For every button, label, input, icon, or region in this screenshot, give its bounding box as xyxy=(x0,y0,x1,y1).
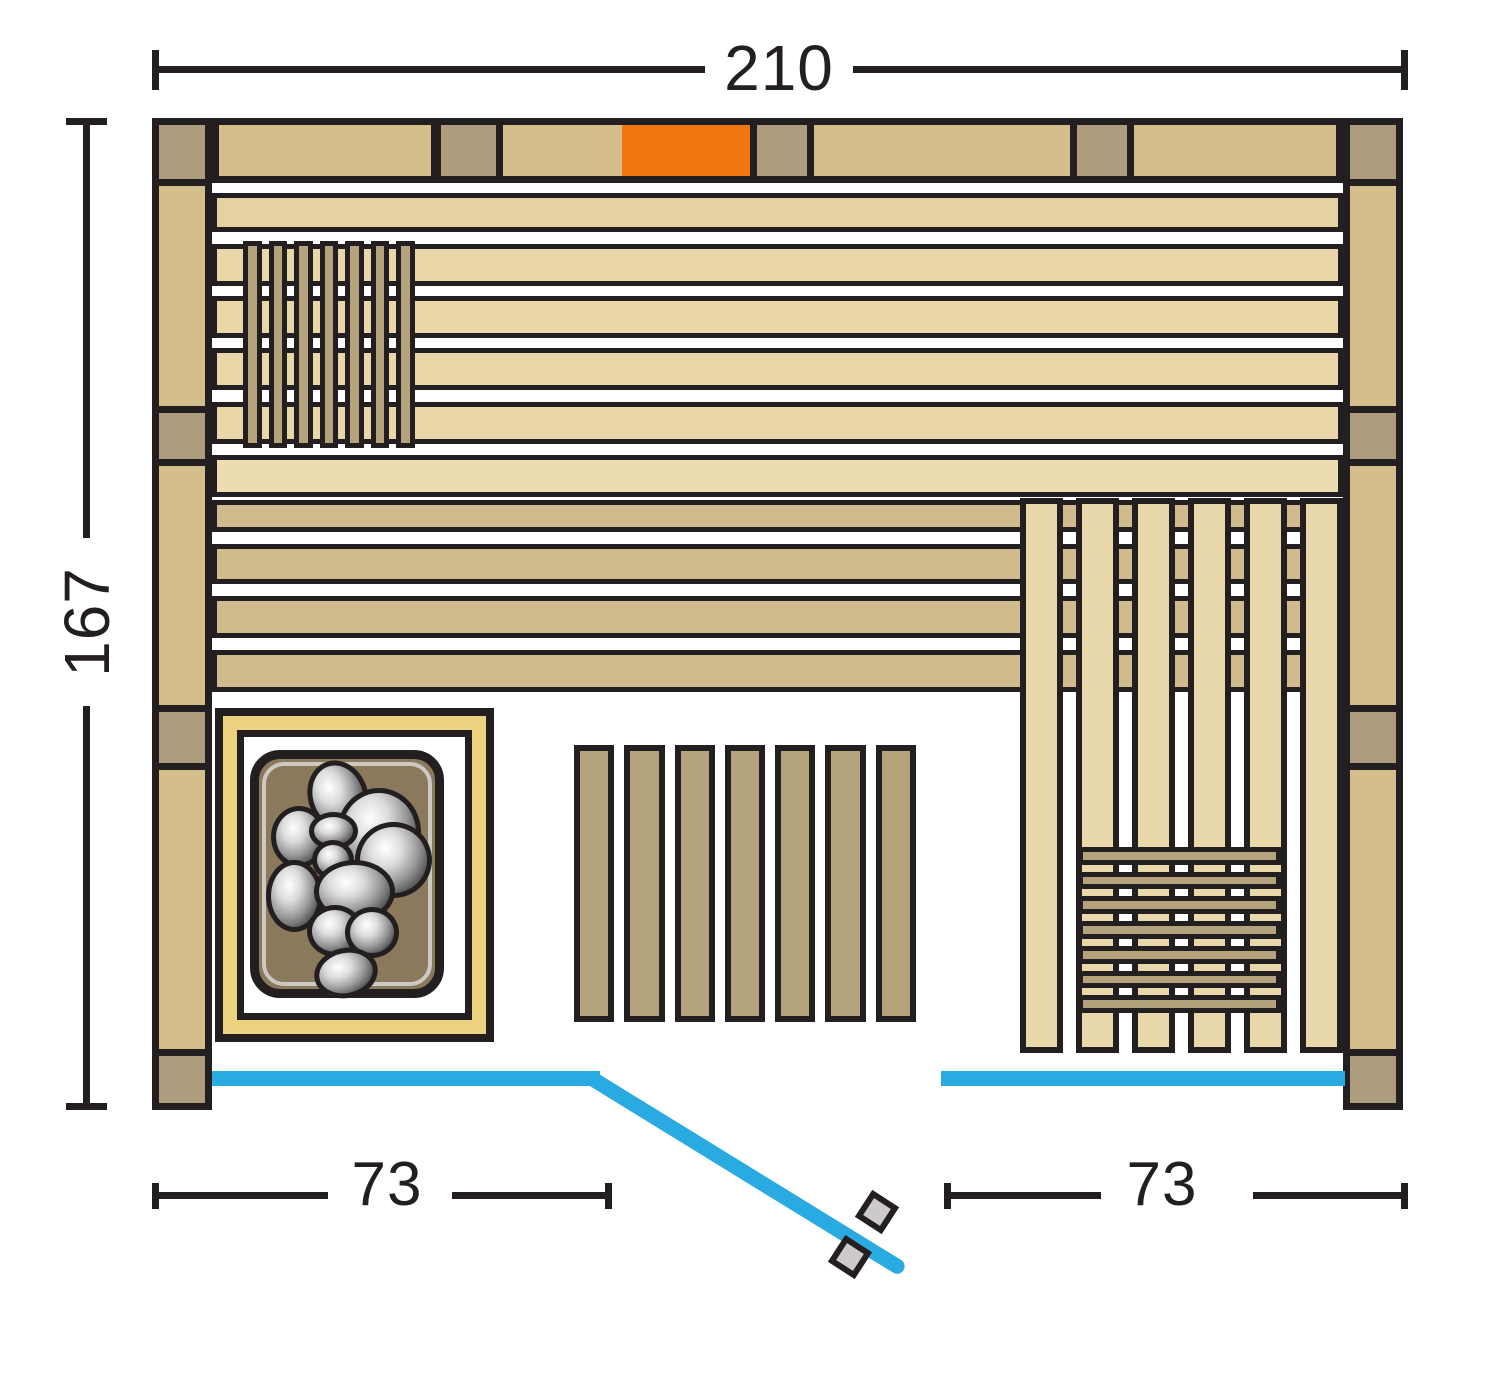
dim-front-left-label: 73 xyxy=(327,1154,447,1216)
dim-left-line-bottom xyxy=(83,706,90,1110)
dim-br-tick-left xyxy=(944,1183,951,1209)
glass-front-left xyxy=(212,1071,600,1086)
corner-post xyxy=(1350,1056,1396,1103)
dim-height-label: 167 xyxy=(55,567,119,677)
wall-board xyxy=(1350,466,1396,705)
wall-board xyxy=(159,770,205,1049)
bench-grate-bar xyxy=(1078,946,1281,964)
wall-post xyxy=(1350,413,1396,459)
headrest-slat xyxy=(269,241,288,448)
back-wall-board-with-vent xyxy=(503,125,750,176)
bench-grate xyxy=(1078,847,1281,1013)
back-wall-post xyxy=(441,125,496,176)
dim-top-tick-right xyxy=(1401,50,1408,90)
corner-post xyxy=(1350,125,1396,179)
back-wall-board xyxy=(814,125,1070,176)
bench-grate-bar xyxy=(1078,921,1281,939)
left-wall xyxy=(152,118,212,1110)
wall-board xyxy=(1350,770,1396,1049)
dim-top-line-right xyxy=(853,66,1408,73)
right-bench-slat xyxy=(1300,498,1343,1053)
dim-front-right-label: 73 xyxy=(1102,1154,1222,1216)
dim-left-tick-top xyxy=(66,118,107,125)
floor-grate-slat xyxy=(725,745,765,1022)
floor-grate-slat xyxy=(876,745,916,1022)
bench-grate-bar xyxy=(1078,896,1281,914)
dim-br-tick-right xyxy=(1401,1183,1408,1209)
wall-board xyxy=(1350,186,1396,406)
headrest-slat xyxy=(320,241,339,448)
corner-post xyxy=(159,1056,205,1103)
back-wall xyxy=(212,118,1343,183)
wall-post xyxy=(159,712,205,763)
headrest-slat xyxy=(294,241,313,448)
bench-grate-bar xyxy=(1078,847,1281,865)
headrest-slat xyxy=(243,241,262,448)
wall-post xyxy=(1350,712,1396,763)
headrest-slat xyxy=(345,241,364,448)
door-handle xyxy=(855,1190,899,1234)
headrest-slat xyxy=(396,241,415,448)
floor-grate xyxy=(574,745,916,1022)
dim-bl-tick-left xyxy=(152,1183,159,1209)
bench-plank xyxy=(212,193,1343,232)
dim-width-label: 210 xyxy=(699,36,859,100)
wall-board xyxy=(159,466,205,705)
floor-grate-slat xyxy=(574,745,614,1022)
floor-grate-slat xyxy=(775,745,815,1022)
dim-bl-line-right xyxy=(452,1192,612,1199)
wall-board xyxy=(159,186,205,406)
corner-post xyxy=(159,125,205,179)
dim-br-line-right xyxy=(1253,1192,1408,1199)
dim-bl-tick-right xyxy=(605,1183,612,1209)
floor-grate-slat xyxy=(624,745,664,1022)
dim-bl-line-left xyxy=(152,1192,328,1199)
right-bench-slat xyxy=(1020,498,1063,1053)
dim-left-tick-bottom xyxy=(66,1103,107,1110)
back-wall-board xyxy=(219,125,431,176)
floor-grate-slat xyxy=(825,745,865,1022)
back-wall-post xyxy=(757,125,807,176)
headrest-slat xyxy=(371,241,390,448)
bench-grate-bar xyxy=(1078,995,1281,1013)
dim-top-line-left xyxy=(152,66,705,73)
right-wall xyxy=(1343,118,1403,1110)
dim-br-line-left xyxy=(944,1192,1101,1199)
sauna-floor-plan: 210 167 73 73 xyxy=(0,0,1500,1389)
back-wall-board xyxy=(1134,125,1336,176)
dim-left-line-top xyxy=(83,118,90,538)
bench-edge-plank xyxy=(212,455,1343,497)
bench-grate-bar xyxy=(1078,971,1281,989)
floor-grate-slat xyxy=(675,745,715,1022)
headrest xyxy=(243,241,415,448)
back-wall-post xyxy=(1077,125,1127,176)
glass-front-right xyxy=(941,1071,1345,1086)
bench-grate-bar xyxy=(1078,872,1281,890)
dim-top-tick-left xyxy=(152,50,159,90)
wall-post xyxy=(159,413,205,459)
